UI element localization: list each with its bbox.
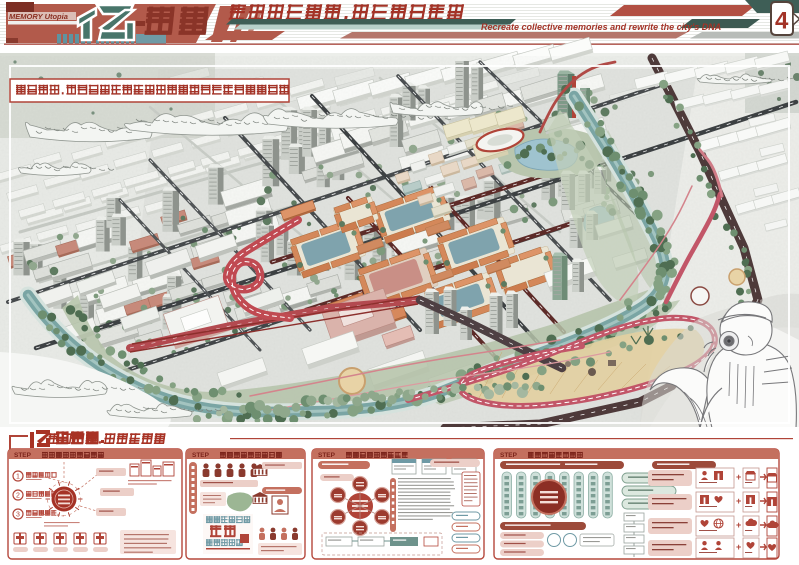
svg-text:+: + [736,542,741,552]
svg-text:STEP: STEP [14,452,32,459]
svg-text:STEP: STEP [500,452,518,459]
svg-text:1: 1 [16,474,20,481]
svg-text:STEP: STEP [318,452,336,459]
svg-text:2: 2 [16,493,20,500]
svg-text:STEP: STEP [192,452,210,459]
svg-text:MEMORY Utopia: MEMORY Utopia [9,12,68,21]
svg-text:+: + [736,472,741,482]
svg-text:+: + [736,496,741,506]
svg-text:3: 3 [16,512,20,519]
svg-text:4: 4 [775,8,789,35]
svg-text:Recreate collective memories a: Recreate collective memories and rewrite… [481,22,721,32]
svg-text:+: + [736,520,741,530]
